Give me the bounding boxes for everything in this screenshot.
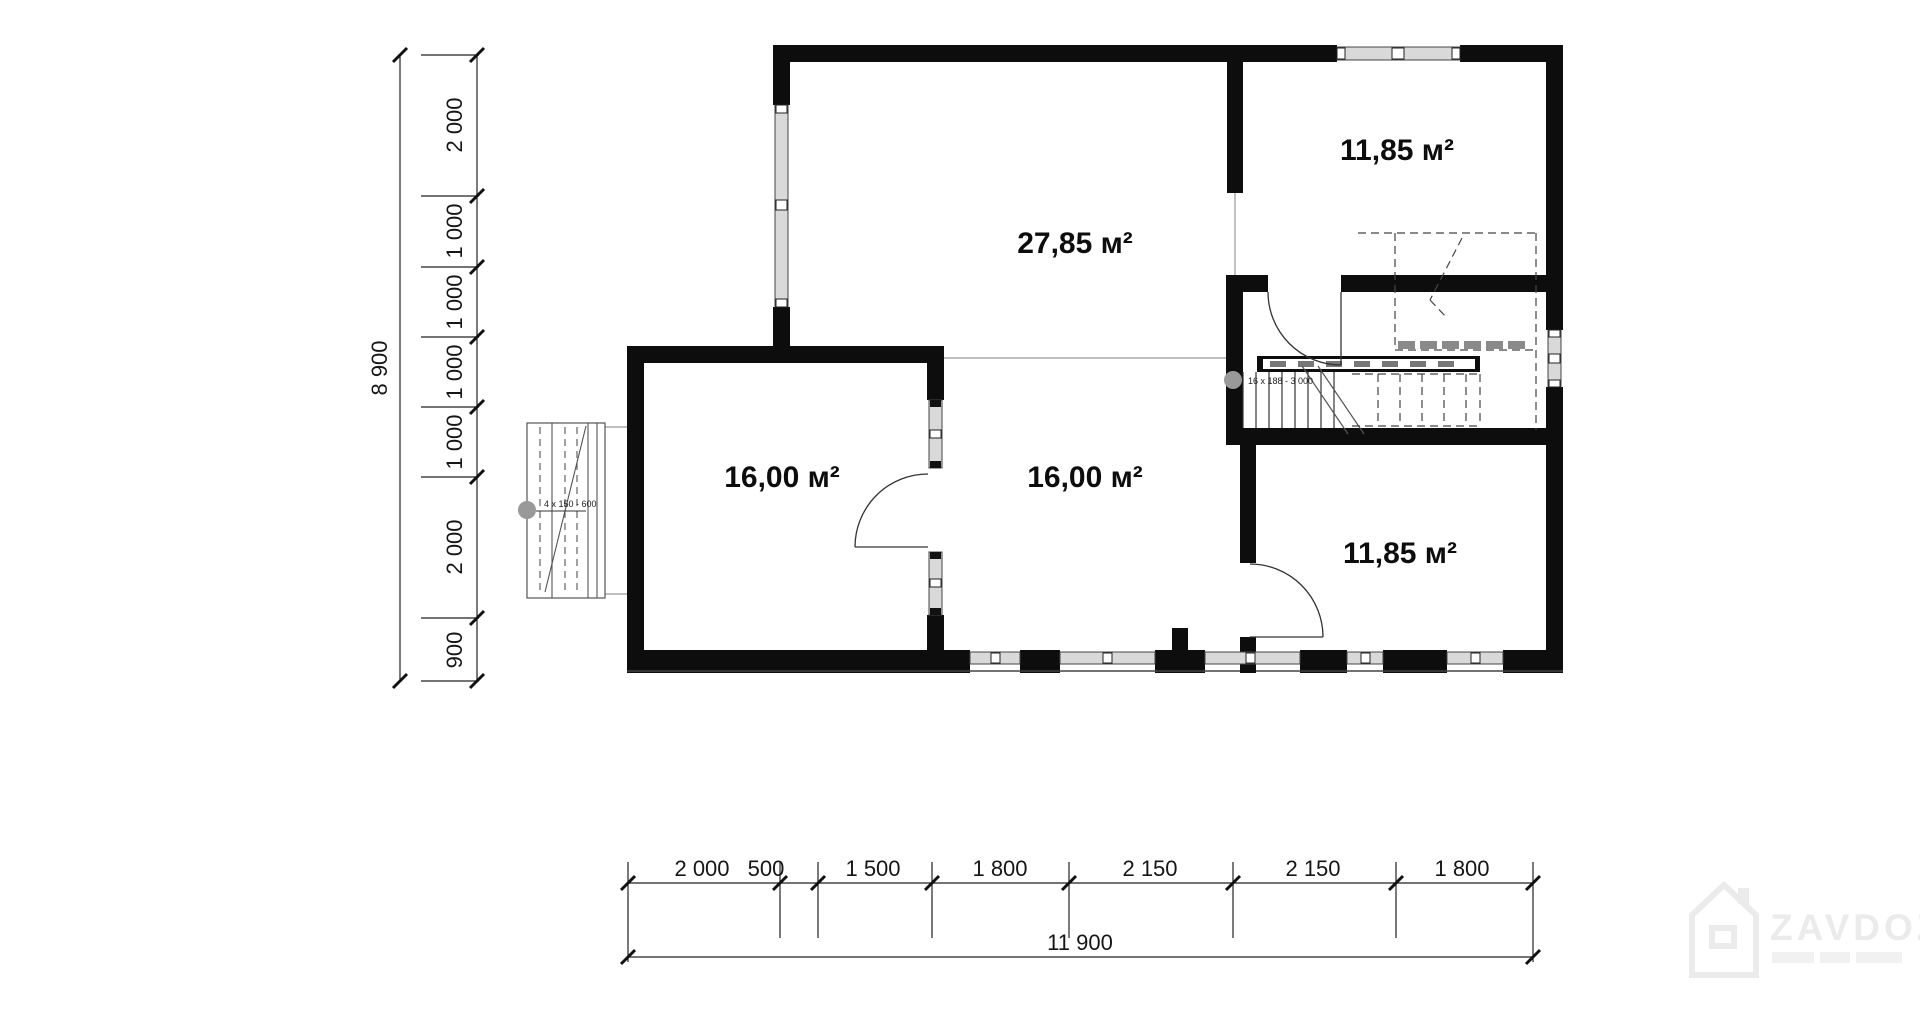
room-label-bottom-right: 11,85 м²: [1343, 537, 1457, 570]
dim-left-3: 1 000: [442, 344, 467, 399]
dim-bottom-0: 2 000: [674, 856, 729, 881]
dim-bottom-2: 1 500: [845, 856, 900, 881]
window-left-wall: [775, 105, 788, 307]
dim-left-4: 1 000: [442, 414, 467, 469]
dim-bottom-6: 1 800: [1434, 856, 1489, 881]
stair-newel-post: [1224, 371, 1242, 389]
watermark-brand: ZAVDOZ: [1770, 907, 1920, 948]
window-right-wall: [1548, 330, 1561, 387]
window-top-wall: [1337, 47, 1460, 60]
landing-wall-treads: [1263, 359, 1475, 369]
dim-left-6: 900: [442, 632, 467, 669]
dim-bottom-3: 1 800: [972, 856, 1027, 881]
watermark-tagline: [1772, 952, 1902, 963]
window-wing-partition-upper: [929, 400, 942, 468]
stair-annotation: 16 x 188 - 3 000: [1248, 376, 1313, 386]
dim-left-total: 8 900: [367, 340, 392, 395]
room-label-living: 27,85 м²: [1017, 227, 1133, 260]
room-label-top-right: 11,85 м²: [1340, 134, 1454, 167]
porch-annotation: 4 x 150 - 600: [544, 499, 597, 509]
window-wing-partition-lower: [929, 552, 942, 615]
dim-left-0: 2 000: [442, 97, 467, 152]
dim-bottom-5: 2 150: [1285, 856, 1340, 881]
dim-left-5: 2 000: [442, 519, 467, 574]
dim-left-1: 1 000: [442, 203, 467, 258]
room-label-left: 16,00 м²: [724, 461, 840, 494]
floor-plan-canvas: 2 000 1 000 1 000 1 000 1 000 2 000 900 …: [0, 0, 1920, 1013]
dim-left-2: 1 000: [442, 274, 467, 329]
porch-column: [518, 501, 536, 519]
dim-bottom-4: 2 150: [1122, 856, 1177, 881]
page-background: [0, 0, 1920, 1013]
dim-bottom-1: 500: [748, 856, 785, 881]
room-label-middle: 16,00 м²: [1027, 461, 1143, 494]
dim-bottom-total: 11 900: [1047, 930, 1113, 955]
